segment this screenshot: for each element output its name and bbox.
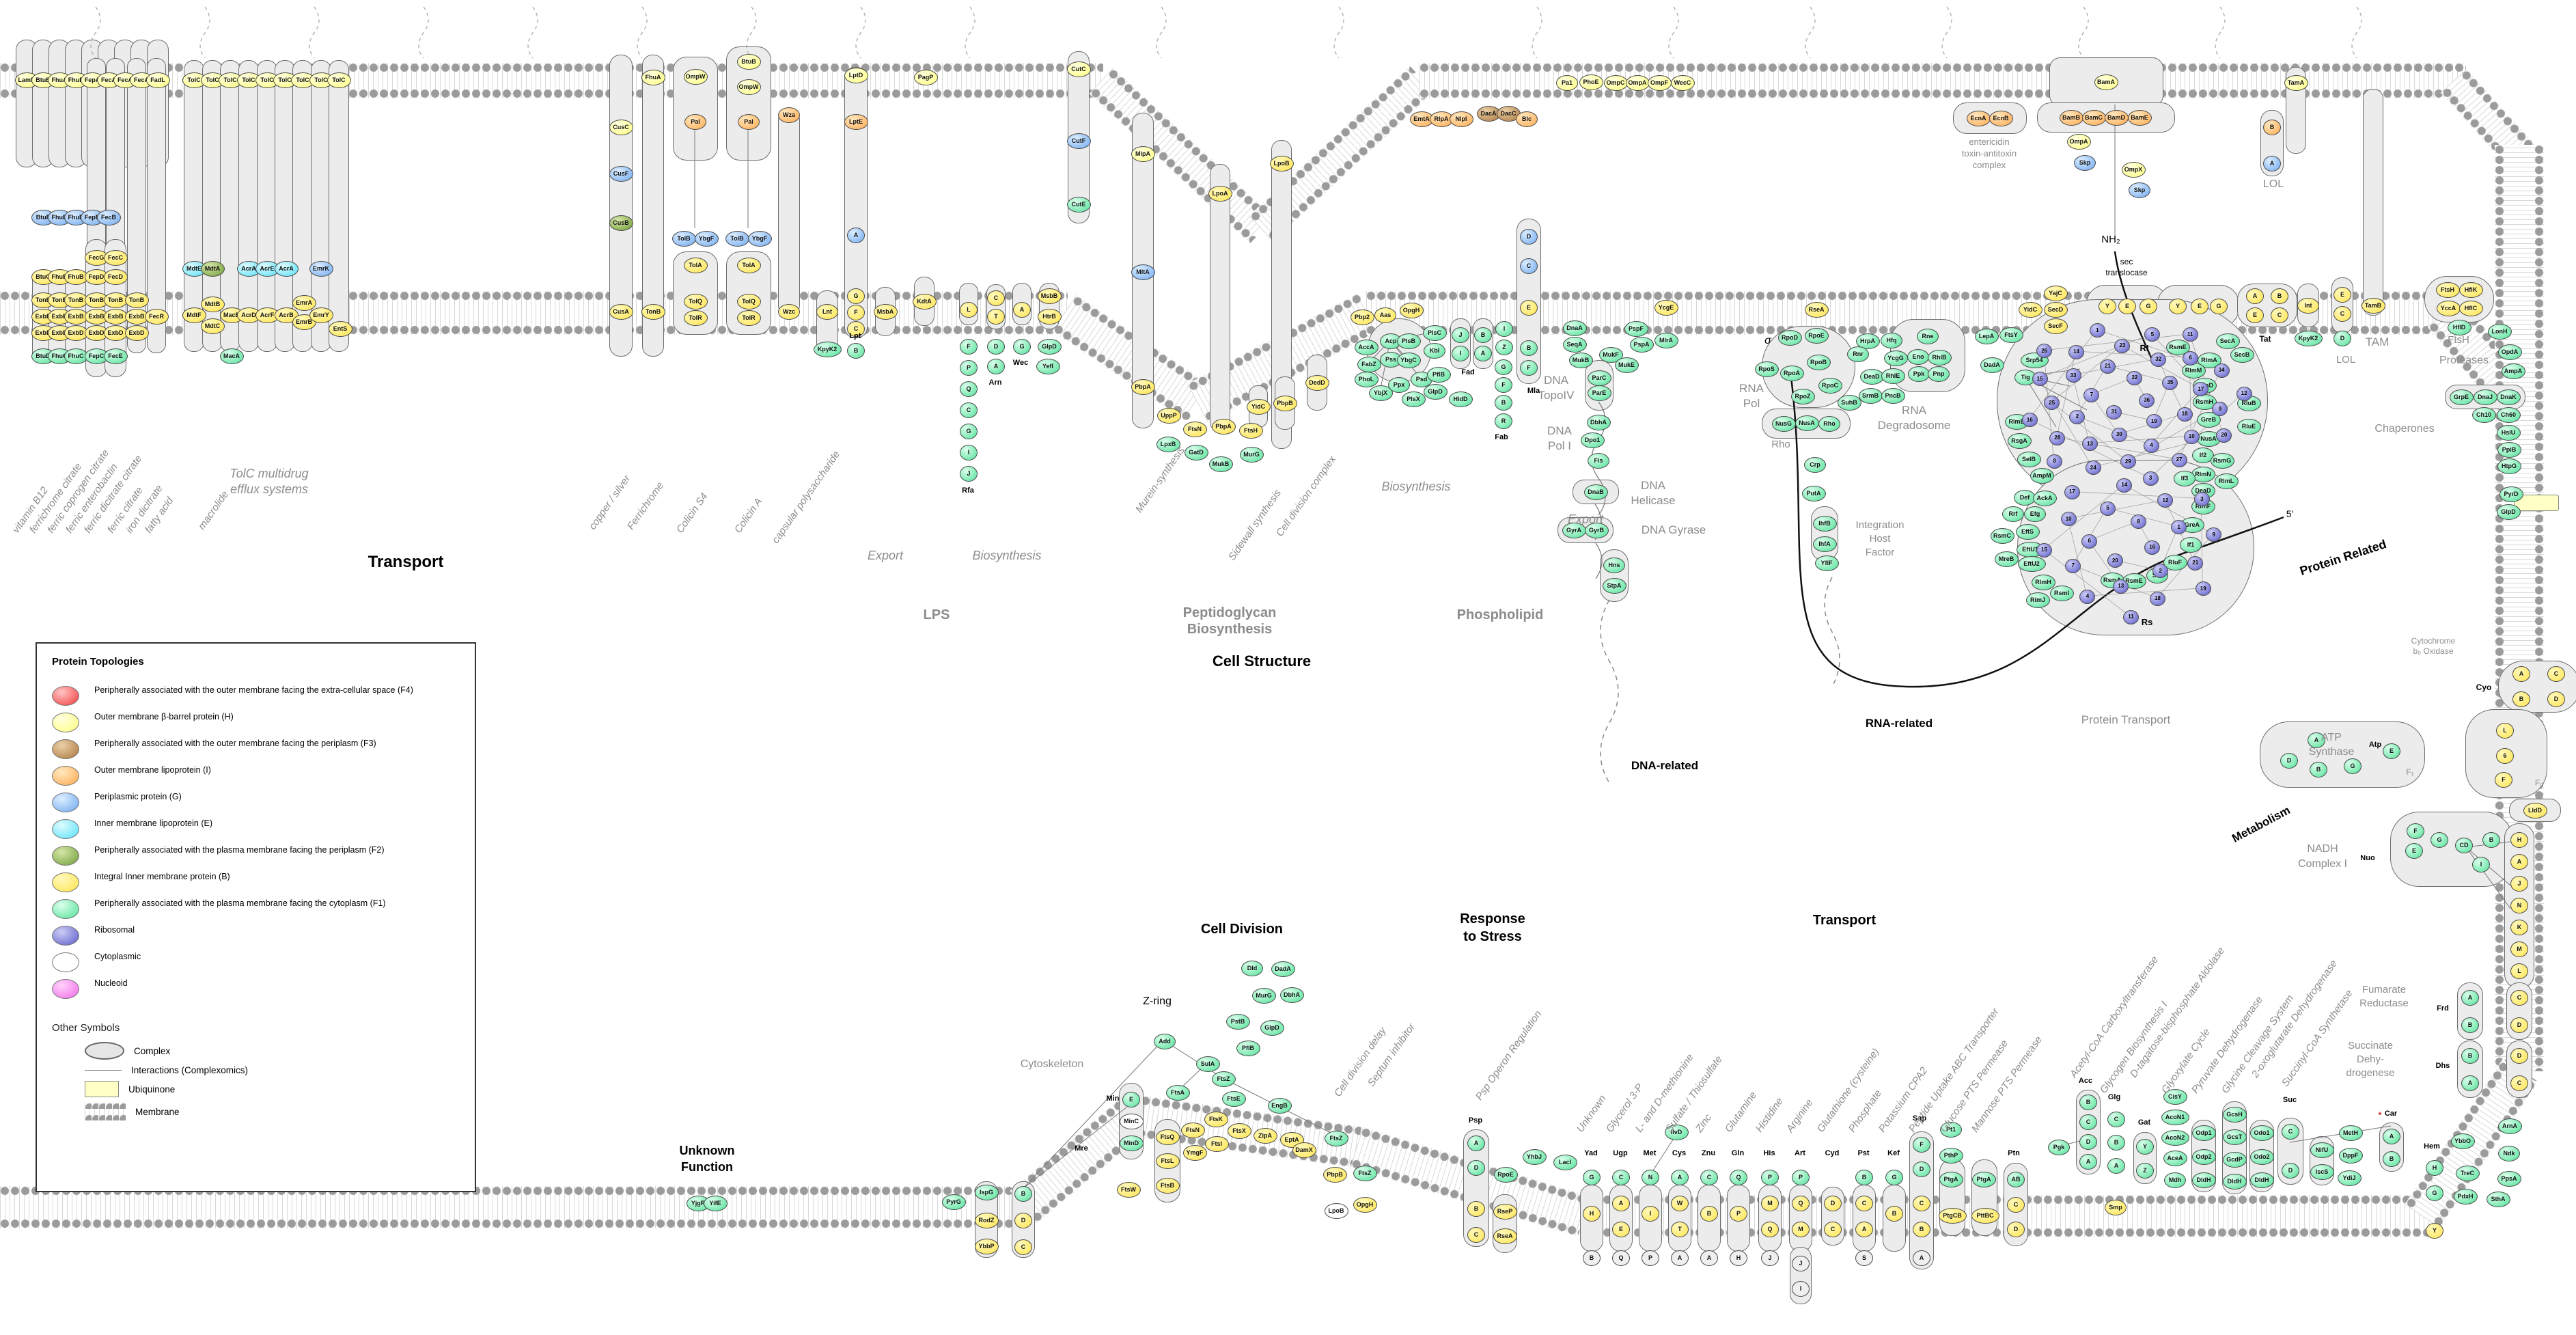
protein-4: 4 xyxy=(2144,439,2159,453)
label-phospholipid: Phospholipid xyxy=(1457,608,1544,622)
protein-wecc: WecC xyxy=(1671,75,1695,91)
protein-fabz: FabZ xyxy=(1357,357,1381,372)
protein-e: E xyxy=(1122,1092,1140,1107)
diagram-path xyxy=(419,7,428,58)
diagram-path xyxy=(856,7,865,58)
protein-b: B xyxy=(1014,1186,1032,1202)
protein-ompw: OmpW xyxy=(684,69,708,85)
protein-ftsh: FtsH xyxy=(2436,282,2460,298)
protein-dada: DadA xyxy=(1271,961,1295,977)
protein-ents: EntS xyxy=(329,321,352,337)
protein-tonb: TonB xyxy=(125,292,149,308)
protein-stpa: StpA xyxy=(1603,578,1626,594)
diagram-path xyxy=(528,7,538,58)
protein-fhua: FhuA xyxy=(641,70,665,85)
label-export: Export xyxy=(1568,513,1603,525)
protein-e: E xyxy=(2246,307,2264,323)
protein-opgh: OpgH xyxy=(1353,1197,1377,1213)
protein-j: J xyxy=(1761,1250,1779,1266)
protein-skp: Skp xyxy=(2074,155,2096,171)
protein-odo1: Odo1 xyxy=(2250,1125,2274,1141)
protein-rodz: RodZ xyxy=(975,1213,999,1228)
protein-11: 11 xyxy=(2183,327,2198,342)
protein-12: 12 xyxy=(2236,387,2252,401)
legend-swatch-c xyxy=(52,952,79,972)
protein-30: 30 xyxy=(2111,428,2127,442)
protein-murg: MurG xyxy=(1240,447,1264,463)
label-arn: Arn xyxy=(989,379,1002,387)
protein-11: 11 xyxy=(2123,610,2139,624)
protein-phol: PhoL xyxy=(1355,372,1379,387)
protein-ppib: PpiB xyxy=(2497,442,2521,458)
label-pst: Pst xyxy=(1857,1150,1869,1157)
protein-zipa: ZipA xyxy=(1254,1128,1277,1144)
protein-d: D xyxy=(1014,1213,1032,1228)
protein-g: G xyxy=(2426,1185,2443,1201)
protein-ftsa: FtsA xyxy=(1166,1085,1190,1101)
complex-icon xyxy=(85,1042,124,1060)
protein-nlpi: NlpI xyxy=(1450,111,1473,127)
protein-secb: SecB xyxy=(2230,347,2254,363)
protein-e: E xyxy=(2118,299,2136,314)
label-transport: Transport xyxy=(368,554,444,570)
protein-e: E xyxy=(2405,843,2423,859)
protein-ecna: EcnA xyxy=(1967,111,1991,126)
protein-hflk: HflK xyxy=(2459,282,2483,298)
protein-rpoe: RpoE xyxy=(1494,1167,1518,1183)
label-gat: Gat xyxy=(2138,1119,2150,1127)
diagram-path xyxy=(2073,375,2089,443)
protein-24: 24 xyxy=(2086,460,2101,475)
label-lol: LOL xyxy=(2336,355,2355,365)
label-function: Function xyxy=(681,1161,733,1173)
protein-f: F xyxy=(960,339,978,355)
protein-a: A xyxy=(987,359,1005,374)
legend-other-title: Other Symbols xyxy=(52,1022,465,1034)
protein-rhle: RhlE xyxy=(1881,368,1905,384)
protein-pnp: Pnp xyxy=(1928,366,1950,382)
protein-ppsa: PpsA xyxy=(2497,1171,2521,1187)
protein-g: G xyxy=(2210,299,2228,314)
protein-d: D xyxy=(1824,1196,1842,1211)
protein-g: G xyxy=(1495,359,1512,375)
protein-tolq: TolQ xyxy=(684,294,708,309)
protein-rpod: RpoD xyxy=(1778,330,1802,346)
protein-wza: Wza xyxy=(778,107,800,123)
label-wec: Wec xyxy=(1013,359,1028,367)
protein-a: A xyxy=(2246,288,2264,304)
protein-t: T xyxy=(1671,1222,1689,1237)
legend-swatch-n xyxy=(52,979,79,999)
protein-pgk: Pgk xyxy=(2048,1140,2070,1155)
label-entericidin: entericidin xyxy=(1969,137,2009,146)
label-dehy: Dehy- xyxy=(2357,1054,2384,1064)
protein-q: Q xyxy=(1730,1170,1747,1185)
protein-mind: MinD xyxy=(1120,1136,1144,1151)
protein-dnaj: DnaJ xyxy=(2474,389,2497,405)
protein-7: 7 xyxy=(2065,559,2081,573)
legend-swatch-f2 xyxy=(52,846,79,866)
label-nuo: Nuo xyxy=(2360,855,2374,862)
protein-rsea: RseA xyxy=(1493,1228,1517,1244)
protein-puta: PutA xyxy=(1802,486,1826,501)
protein-a: A xyxy=(2461,1075,2479,1091)
diagram-path xyxy=(2057,351,2076,437)
protein-f: F xyxy=(1913,1137,1930,1153)
protein-cutc: CutC xyxy=(1067,61,1091,77)
protein-rimj: RimJ xyxy=(2026,592,2050,608)
protein-ompa: OmpA xyxy=(2067,134,2091,150)
protein-pflb: PflB xyxy=(1236,1041,1260,1056)
protein-cutf: CutF xyxy=(1067,133,1091,149)
membrane-icon xyxy=(85,1103,126,1120)
protein-e: E xyxy=(2333,287,2351,303)
protein-rpos: RpoS xyxy=(1755,361,1779,377)
protein-pdxh: PdxH xyxy=(2454,1189,2478,1205)
legend-item: Periplasmic protein (G) xyxy=(52,792,465,812)
protein-c: C xyxy=(2510,990,2528,1006)
diagram-path xyxy=(747,7,756,58)
protein-mdtf: MdtF xyxy=(182,307,206,323)
legend-other-symbols: Other Symbols Complex Interactions (Comp… xyxy=(52,1022,465,1120)
protein-ydij: YdiJ xyxy=(2338,1170,2362,1186)
label-proteases: Proteases xyxy=(2439,355,2489,366)
protein-bama: BamA xyxy=(2094,74,2118,90)
protein-c: C xyxy=(2547,666,2565,682)
protein-21: 21 xyxy=(2187,556,2203,570)
label-biosynthesis: Biosynthesis xyxy=(1381,480,1450,493)
protein-19: 19 xyxy=(2196,581,2211,596)
protein-e: E xyxy=(2383,743,2400,759)
label-f: F₀ xyxy=(2535,779,2543,787)
label-complex-i: Complex I xyxy=(2298,859,2347,870)
protein-ymgf: YmgF xyxy=(1183,1145,1207,1161)
protein-g: G xyxy=(2139,299,2157,314)
protein-c: C xyxy=(1014,1239,1032,1255)
protein-a: A xyxy=(2510,854,2528,870)
protein-ftsb: FtsB xyxy=(1156,1178,1180,1194)
protein-pspa: PspA xyxy=(1630,337,1654,353)
protein-sula: SulA xyxy=(1196,1056,1220,1072)
protein-lpte: LptE xyxy=(844,114,868,130)
protein-dppf: DppF xyxy=(2339,1148,2363,1164)
diagram-path xyxy=(2466,847,2510,909)
label-atp: ATP xyxy=(2321,732,2342,743)
protein-b: B xyxy=(1474,327,1492,343)
protein-t: T xyxy=(987,309,1005,325)
protein-i: I xyxy=(2472,857,2490,872)
protein-j: J xyxy=(2510,876,2528,892)
label-ptn: Ptn xyxy=(2008,1150,2020,1157)
legend-item-text: Inner membrane lipoprotein (E) xyxy=(94,818,212,829)
label-tam: TAM xyxy=(2366,336,2390,348)
protein-wzc: Wzc xyxy=(778,304,800,320)
label-degradosome: Degradosome xyxy=(1878,419,1951,431)
protein-18: 18 xyxy=(2177,407,2193,422)
label-ugp: Ugp xyxy=(1613,1150,1627,1157)
protein-kpyk2: KpyK2 xyxy=(814,342,842,357)
protein-exbd: ExbD xyxy=(125,325,149,341)
protein-int: Int xyxy=(2297,298,2319,314)
protein-ycgg: YcgG xyxy=(1884,350,1908,366)
protein-lepa: LepA xyxy=(1975,329,1999,344)
protein-rlml: RlmL xyxy=(2215,473,2239,489)
diagram-path xyxy=(2071,491,2201,498)
protein-c: C xyxy=(1855,1196,1873,1211)
protein-eftu2: EftU2 xyxy=(2018,556,2046,572)
protein-dldh: DldH xyxy=(2223,1174,2247,1189)
protein-19: 19 xyxy=(2146,414,2162,428)
protein-seca: SecA xyxy=(2216,333,2240,349)
protein-gcdp: GcdP xyxy=(2223,1152,2247,1168)
protein-r: R xyxy=(1495,413,1512,429)
protein-pbpa: PbpA xyxy=(1212,419,1236,435)
protein-pbp2: Pbp2 xyxy=(1351,309,1374,325)
protein-eno: Eno xyxy=(1907,349,1929,365)
protein-engb: EngB xyxy=(1268,1098,1292,1114)
protein-g: G xyxy=(1885,1170,1903,1185)
legend-items: Peripherally associated with the outer m… xyxy=(52,685,465,999)
protein-ch60: Ch60 xyxy=(2497,407,2521,423)
protein-c: C xyxy=(2333,306,2351,322)
protein-a: A xyxy=(1671,1250,1689,1266)
label-reductase: Reductase xyxy=(2359,998,2409,1008)
legend-title: Protein Topologies xyxy=(52,656,465,667)
protein-kpyk2: KpyK2 xyxy=(2295,331,2323,346)
protein-ptga: PtgA xyxy=(1972,1172,1996,1187)
protein-q: Q xyxy=(1792,1196,1810,1211)
protein-b: B xyxy=(1520,340,1538,356)
protein-z: Z xyxy=(2136,1163,2154,1179)
protein-34: 34 xyxy=(2214,363,2230,378)
protein-cusb: CusB xyxy=(609,215,633,231)
protein-odo2: Odo2 xyxy=(2250,1149,2274,1165)
protein-parc: ParC xyxy=(1588,370,1611,386)
legend-membrane-label: Membrane xyxy=(135,1107,180,1117)
protein-kbl: Kbl xyxy=(1424,343,1445,359)
protein-gatd: GatD xyxy=(1185,445,1208,460)
label-nh: NH₂ xyxy=(2101,234,2120,245)
label-response: Response xyxy=(1460,912,1525,926)
protein-f: F xyxy=(2407,823,2424,839)
label-f: F₁ xyxy=(2406,768,2413,776)
protein-3: 3 xyxy=(2194,492,2210,506)
label-mla: Mla xyxy=(1527,387,1540,395)
protein-n: N xyxy=(2510,898,2528,913)
protein-a: A xyxy=(1467,1136,1485,1151)
protein-hslu: HslU xyxy=(2497,425,2521,441)
protein-a: A xyxy=(1612,1196,1630,1211)
protein-glpd: GlpD xyxy=(1424,384,1448,400)
protein-lldd: LldD xyxy=(2523,803,2547,818)
protein-a: A xyxy=(1913,1250,1930,1266)
protein-emrk: EmrK xyxy=(309,261,333,277)
protein-3: 3 xyxy=(2143,471,2159,486)
label-b-oxidase: b₀ Oxidase xyxy=(2413,647,2453,655)
protein-h: H xyxy=(2426,1160,2443,1176)
protein-dld: Dld xyxy=(1241,961,1263,976)
protein-ch10: Ch10 xyxy=(2472,407,2496,423)
protein-ptga: PtgA xyxy=(1939,1172,1963,1187)
ecoli-proteome-diagram: Protein Topologies Peripherally associat… xyxy=(0,0,2576,1335)
protein-msba: MsbA xyxy=(874,304,898,320)
label-tolc-multidrug: TolC multidrug xyxy=(230,467,308,480)
protein-maca: MacA xyxy=(220,348,244,364)
protein-uppp: UppP xyxy=(1157,408,1181,424)
protein-arna: ArnA xyxy=(2498,1118,2522,1134)
diagram-path xyxy=(1825,577,1840,687)
protein-35: 35 xyxy=(2162,376,2178,390)
protein-pspf: PspF xyxy=(1624,321,1648,337)
protein-cd: CD xyxy=(2455,838,2473,853)
label-topoiv: TopoIV xyxy=(1538,389,1575,401)
protein-b: B xyxy=(1583,1250,1601,1266)
protein-acea: AceA xyxy=(2163,1151,2187,1166)
protein-ftsx: FtsX xyxy=(1228,1123,1251,1139)
protein-pal: Pal xyxy=(738,114,760,130)
diagram-path xyxy=(2089,436,2191,443)
label-acc: Acc xyxy=(2079,1077,2092,1085)
label-rna-related: RNA-related xyxy=(1866,717,1933,729)
protein-17: 17 xyxy=(2064,485,2080,499)
diagram-path xyxy=(91,7,100,58)
protein-f: F xyxy=(847,305,865,320)
label-rna: RNA xyxy=(1739,383,1764,394)
protein-nifu: NifU xyxy=(2310,1142,2334,1158)
protein-d: D xyxy=(1913,1161,1930,1177)
label-cell-division: Cell Division xyxy=(1201,922,1283,936)
protein-q: Q xyxy=(1612,1250,1630,1266)
legend-complex-row: Complex xyxy=(85,1042,465,1060)
protein-htrb: HtrB xyxy=(1038,309,1062,325)
protein-rsmi: RsmI xyxy=(2050,586,2074,601)
protein-g: G xyxy=(960,424,978,439)
protein-p: P xyxy=(1642,1250,1659,1266)
label-sec: sec xyxy=(2120,258,2133,266)
protein-tamb: TamB xyxy=(2362,298,2385,314)
protein-6: 6 xyxy=(2081,534,2097,549)
label-succinate: Succinate xyxy=(2348,1041,2393,1051)
legend-ubiquinone-row: Ubiquinone xyxy=(85,1081,465,1097)
protein-ppk: Ppk xyxy=(1908,366,1930,382)
protein-muke: MukE xyxy=(1615,357,1639,373)
protein-tolc: TolC xyxy=(327,72,351,88)
ubiquinone-icon xyxy=(85,1081,119,1097)
protein-e: E xyxy=(1520,300,1538,316)
protein-g: G xyxy=(1583,1170,1601,1185)
legend-protein-topologies: Protein Topologies Peripherally associat… xyxy=(36,642,476,1192)
protein-mdh: Mdh xyxy=(2164,1172,2186,1188)
label-gln: Gln xyxy=(1732,1150,1744,1157)
protein-c: C xyxy=(2107,1112,2125,1127)
label-znu: Znu xyxy=(1702,1150,1715,1157)
label-dna: DNA xyxy=(1544,374,1568,386)
legend-item-text: Nucleoid xyxy=(94,978,128,989)
protein-acon1: AcoN1 xyxy=(2161,1110,2189,1125)
protein-a: A xyxy=(1700,1250,1718,1266)
protein-acka: AckA xyxy=(2033,491,2057,506)
label-unknown: Unknown xyxy=(680,1144,735,1157)
label-fumarate: Fumarate xyxy=(2362,985,2406,995)
diagram-path xyxy=(1669,7,1678,58)
protein-efts: EftS xyxy=(2016,524,2040,540)
protein-mlra: MlrA xyxy=(1654,333,1678,348)
protein-a: A xyxy=(1671,1170,1689,1185)
protein-8: 8 xyxy=(2047,454,2062,469)
protein-ompx: OmpX xyxy=(2122,162,2146,178)
protein-ybjx: YbjX xyxy=(1369,385,1393,401)
protein-i: I xyxy=(960,445,978,460)
protein-btub: BtuB xyxy=(737,54,761,70)
protein-g: G xyxy=(2344,758,2362,774)
protein-htpg: HtpG xyxy=(2497,458,2521,474)
protein-tonb: TonB xyxy=(641,304,665,320)
protein-16: 16 xyxy=(2022,413,2038,427)
protein-15: 15 xyxy=(2032,372,2048,386)
label-peptidoglycan: Peptidoglycan xyxy=(1183,606,1277,620)
diagram-path xyxy=(2215,7,2225,58)
protein-a: A xyxy=(1474,346,1492,361)
protein-f: F xyxy=(2495,772,2512,788)
label-biosynthesis: Biosynthesis xyxy=(972,549,1041,562)
protein-c: C xyxy=(1824,1222,1842,1237)
protein-fadl: FadL xyxy=(146,72,170,88)
label-mre: Mre xyxy=(1075,1145,1088,1153)
protein-stha: SthA xyxy=(2487,1192,2510,1207)
label-hem: Hem xyxy=(2424,1143,2440,1151)
label-cytoskeleton: Cytoskeleton xyxy=(1021,1059,1084,1070)
protein-b: B xyxy=(1700,1206,1718,1222)
label-efflux-systems: efflux systems xyxy=(230,483,308,495)
protein-mlta: MltA xyxy=(1131,264,1155,280)
protein-c: C xyxy=(987,290,1005,306)
protein-mdta: MdtA xyxy=(201,261,225,277)
label-nadh: NADH xyxy=(2307,844,2338,855)
protein-2: 2 xyxy=(2069,410,2085,424)
protein-pflb: PflB xyxy=(1427,367,1451,383)
protein-ompf: OmpF xyxy=(1648,75,1672,91)
protein-ihfb: IhfB xyxy=(1813,516,1837,532)
protein-e: E xyxy=(1612,1222,1630,1237)
protein-33: 33 xyxy=(2066,368,2081,383)
diagram-path xyxy=(637,7,647,58)
protein-ftsq: FtsQ xyxy=(1156,1129,1180,1145)
label-factor: Factor xyxy=(1866,547,1895,558)
protein-ompw: OmpW xyxy=(737,79,761,95)
legend-item-text: Peripherally associated with the outer m… xyxy=(94,739,376,749)
protein-36: 36 xyxy=(2139,394,2155,408)
protein-odp2: Odp2 xyxy=(2192,1149,2216,1165)
protein-ndk: Ndk xyxy=(2498,1146,2520,1161)
protein-add: Add xyxy=(1154,1034,1176,1049)
protein-ftse: FtsE xyxy=(1222,1091,1246,1107)
protein-28: 28 xyxy=(2049,431,2065,445)
label-synthase: Synthase xyxy=(2309,747,2355,758)
protein-a: A xyxy=(2263,156,2281,171)
protein-hns: Hns xyxy=(1603,558,1625,573)
protein-ab: AB xyxy=(2007,1172,2025,1187)
protein-g: G xyxy=(847,288,865,304)
protein-if1: If1 xyxy=(2180,537,2202,553)
protein-tolb: TolB xyxy=(672,231,696,247)
protein-p: P xyxy=(960,360,978,376)
protein-yajc: YajC xyxy=(2044,286,2068,301)
protein-b: B xyxy=(2271,288,2288,304)
label-dna: DNA xyxy=(1547,425,1572,437)
label-min: Min xyxy=(1107,1095,1120,1103)
protein-j: J xyxy=(1452,327,1469,343)
protein-glpd: GlpD xyxy=(1260,1020,1284,1036)
